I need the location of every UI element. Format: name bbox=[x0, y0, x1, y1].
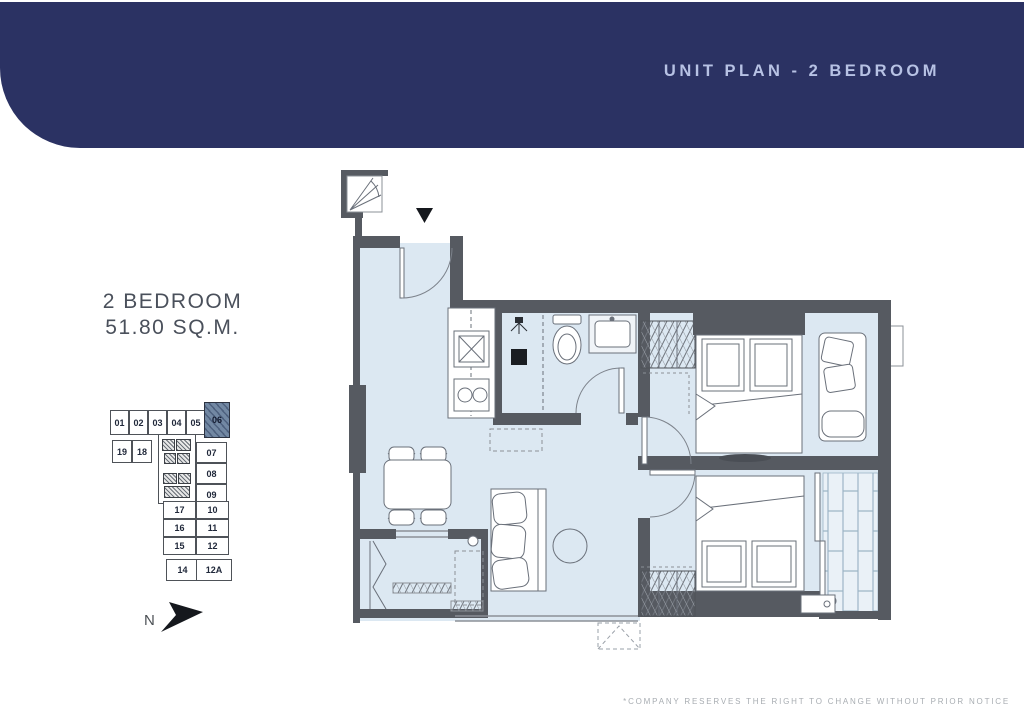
floor-area bbox=[360, 243, 891, 621]
toilet-icon bbox=[553, 315, 581, 364]
keyplan-unit-05: 05 bbox=[186, 410, 205, 435]
unit-type-label: 2 BEDROOM bbox=[100, 289, 245, 315]
page-title: UNIT PLAN - 2 BEDROOM bbox=[664, 62, 940, 81]
double-bed-icon bbox=[696, 476, 804, 591]
ac-ledge-fan-icon bbox=[347, 176, 382, 212]
north-arrow-icon bbox=[161, 602, 205, 636]
unit-info: 2 BEDROOM 51.80 SQ.M. bbox=[100, 289, 245, 341]
wardrobe-icon bbox=[641, 571, 695, 616]
sofa-icon bbox=[491, 489, 546, 591]
keyplan-unit-12A: 12A bbox=[196, 559, 232, 581]
north-label: N bbox=[144, 612, 155, 629]
kitchen-counter bbox=[448, 308, 495, 418]
keyplan-unit-03: 03 bbox=[148, 410, 167, 435]
keyplan-unit-08: 08 bbox=[196, 463, 227, 484]
keyplan-unit-11: 11 bbox=[196, 519, 229, 537]
keyplan-unit-16: 16 bbox=[163, 519, 196, 537]
condenser-unit-icon bbox=[598, 623, 640, 649]
keyplan-unit-15: 15 bbox=[163, 537, 196, 555]
keyplan-unit-07: 07 bbox=[196, 442, 227, 463]
disclaimer-text: *COMPANY RESERVES THE RIGHT TO CHANGE WI… bbox=[623, 697, 1010, 706]
bench-seat-icon bbox=[819, 333, 866, 441]
keyplan-unit-17: 17 bbox=[163, 501, 196, 519]
window-ledge-icon bbox=[891, 326, 903, 366]
keyplan-unit-12: 12 bbox=[196, 537, 229, 555]
wardrobe-icon bbox=[641, 321, 695, 368]
double-bed-icon bbox=[693, 313, 805, 453]
unit-area-label: 51.80 SQ.M. bbox=[100, 315, 245, 341]
balcony-tile-icon bbox=[823, 473, 878, 613]
floor-plan bbox=[333, 163, 908, 668]
stove-icon bbox=[454, 379, 489, 411]
keyplan-unit-02: 02 bbox=[129, 410, 148, 435]
keyplan-unit-10: 10 bbox=[196, 501, 229, 519]
entry-arrow-icon bbox=[416, 208, 433, 223]
keyplan-unit-06-highlighted: 06 bbox=[204, 402, 230, 438]
basin-icon bbox=[589, 315, 636, 353]
north-indicator: N bbox=[144, 602, 204, 642]
keyplan-core bbox=[158, 434, 196, 504]
keyplan-unit-01: 01 bbox=[110, 410, 129, 435]
floor-plan-drawing bbox=[333, 163, 908, 668]
keyplan-unit-04: 04 bbox=[167, 410, 186, 435]
keyplan-unit-19: 19 bbox=[112, 440, 132, 463]
building-key-plan: 01 02 03 04 05 06 19 18 07 08 09 17 10 1… bbox=[108, 402, 238, 586]
kitchen-sink-icon bbox=[454, 331, 489, 367]
keyplan-unit-14: 14 bbox=[166, 559, 199, 581]
keyplan-unit-18: 18 bbox=[132, 440, 152, 463]
tv-icon bbox=[719, 454, 771, 462]
round-table-icon bbox=[553, 529, 587, 563]
planter-box-icon bbox=[801, 595, 835, 613]
unit-plan-page: UNIT PLAN - 2 BEDROOM 2 BEDROOM 51.80 SQ… bbox=[0, 0, 1024, 724]
